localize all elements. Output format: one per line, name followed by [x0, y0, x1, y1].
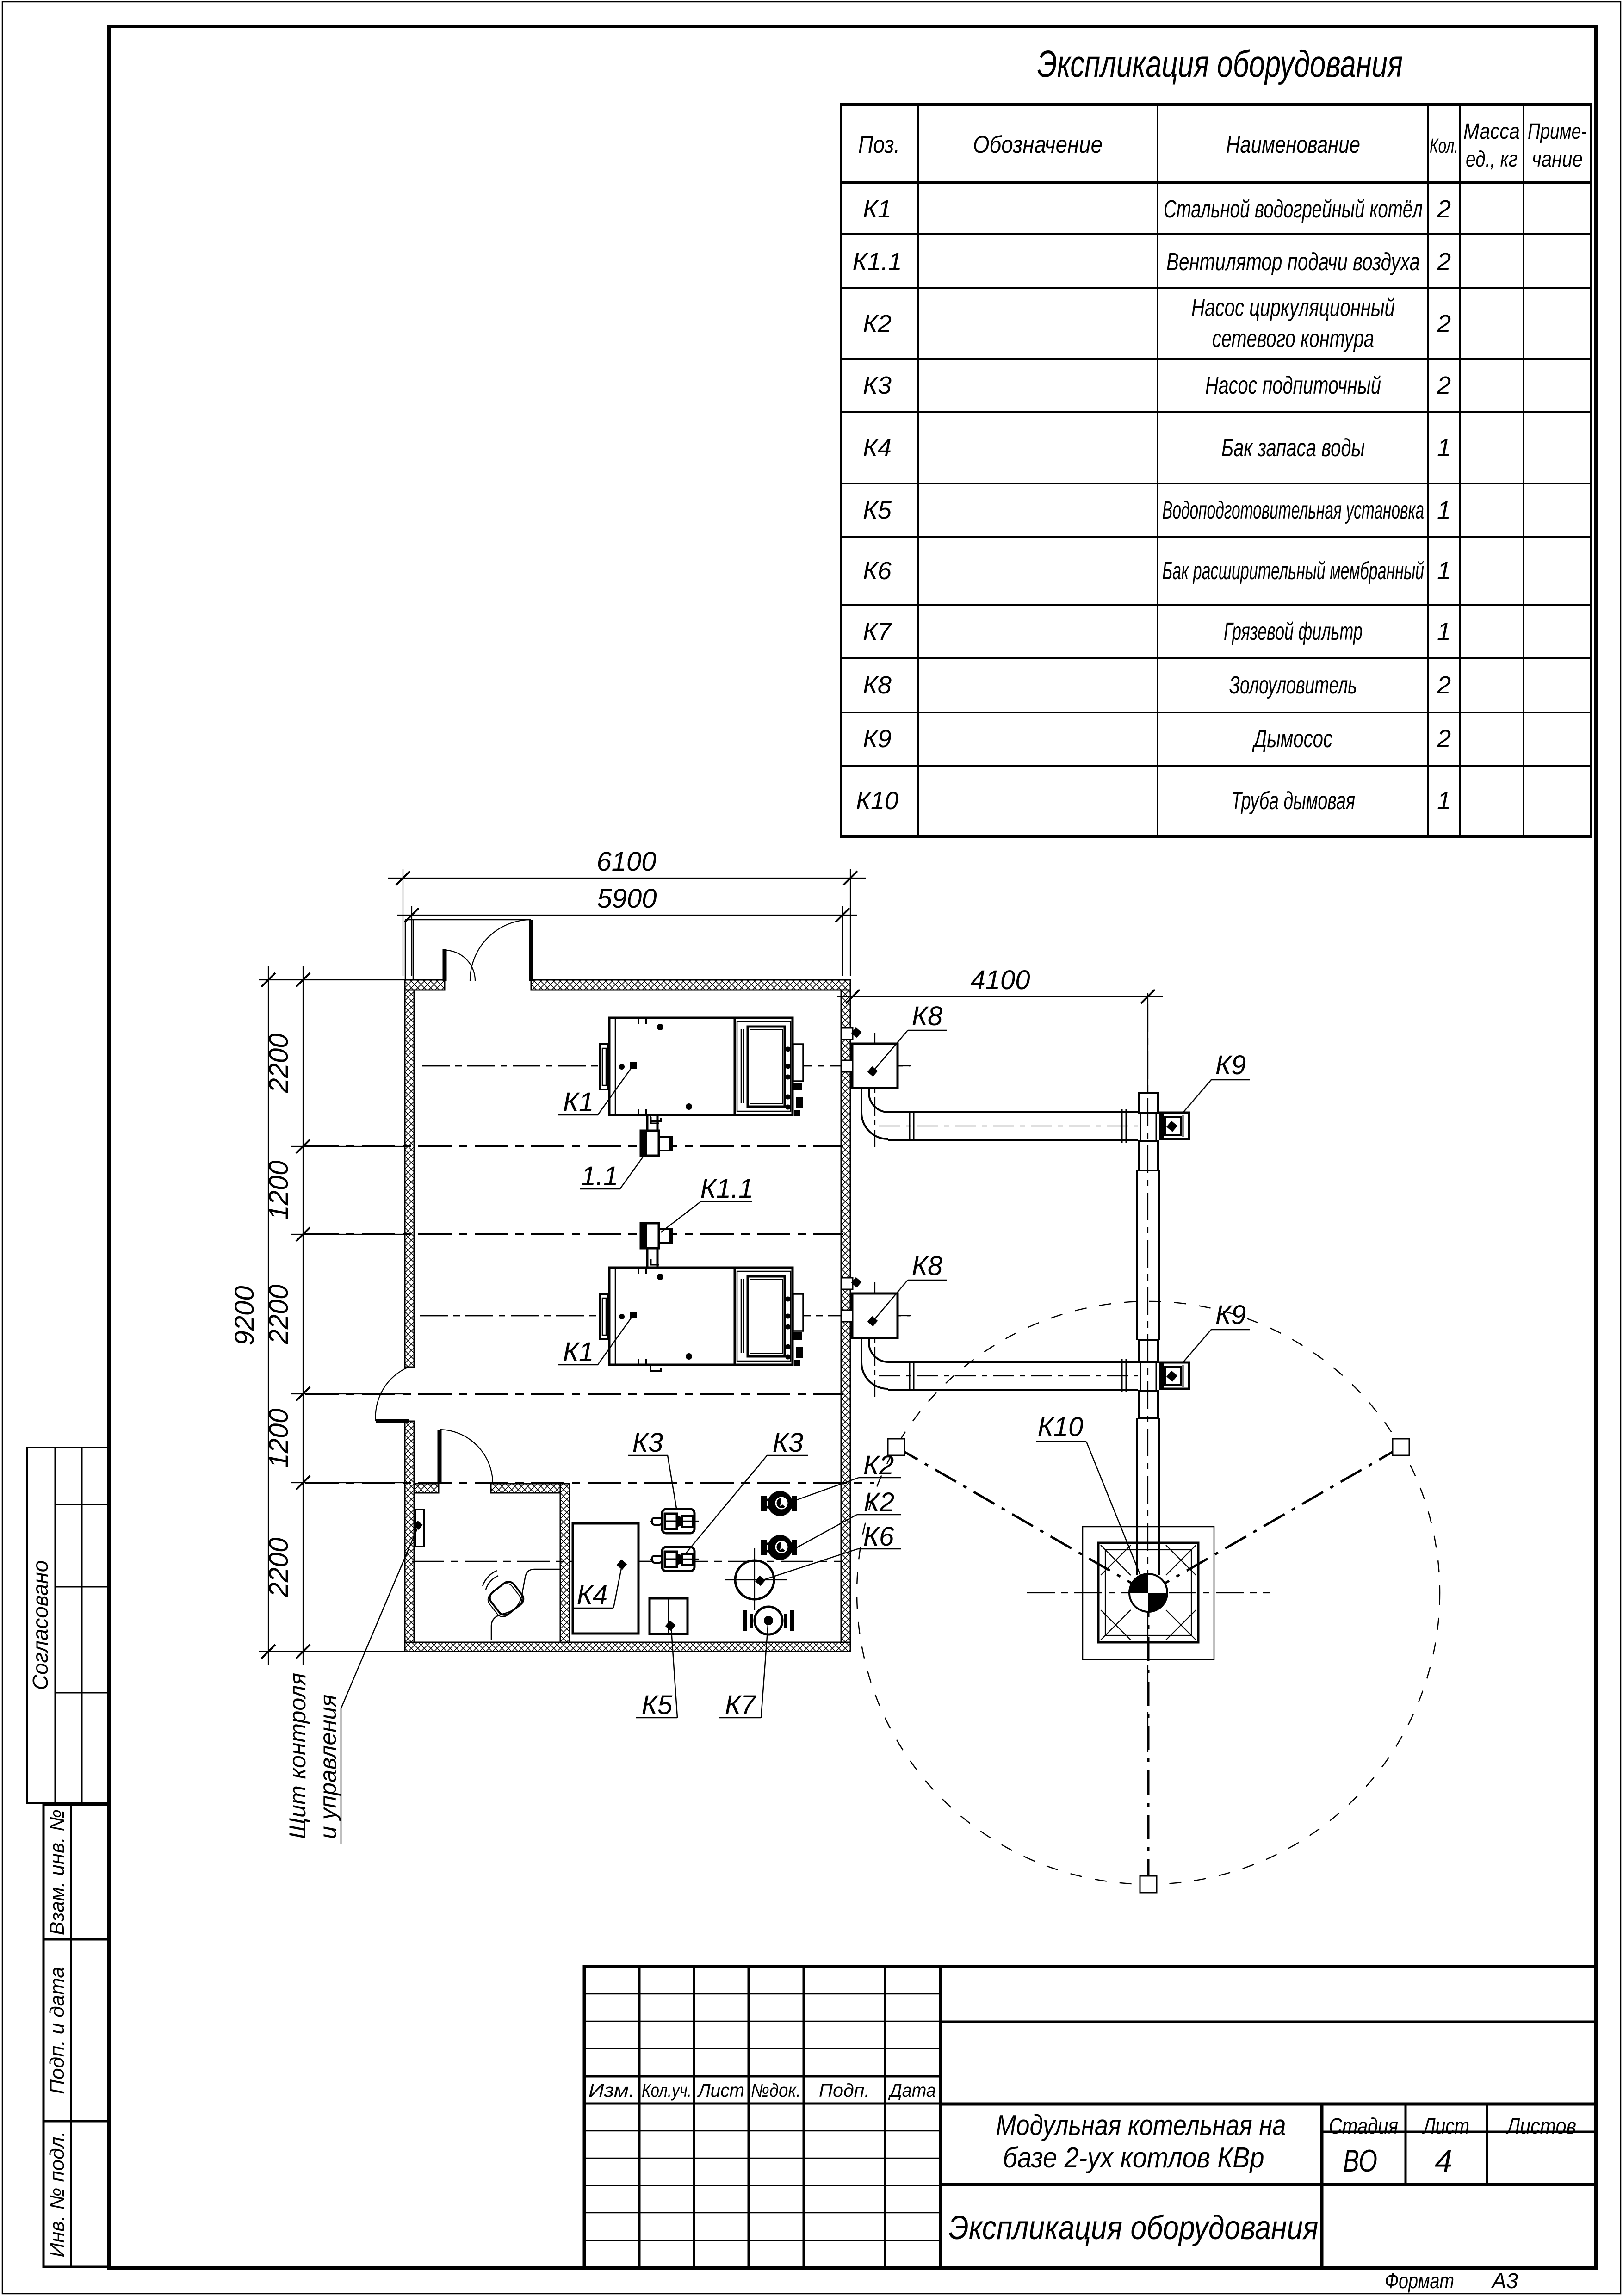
svg-text:4: 4 [1435, 2143, 1452, 2178]
svg-text:Лист: Лист [697, 2080, 744, 2101]
svg-text:К1.1: К1.1 [700, 1174, 754, 1204]
svg-text:Золоуловитель: Золоуловитель [1229, 671, 1357, 699]
svg-text:К1.1: К1.1 [853, 248, 902, 276]
svg-text:Масса: Масса [1463, 119, 1520, 144]
svg-text:К9: К9 [863, 725, 892, 753]
svg-text:Дымосос: Дымосос [1252, 725, 1332, 753]
svg-text:чание: чание [1532, 147, 1583, 172]
svg-text:Листов: Листов [1505, 2114, 1576, 2139]
svg-text:Кол.уч.: Кол.уч. [642, 2080, 692, 2101]
svg-text:1200: 1200 [264, 1408, 294, 1468]
svg-text:Наименование: Наименование [1226, 131, 1360, 158]
svg-text:Модульная котельная на: Модульная котельная на [996, 2110, 1286, 2141]
svg-text:Стальной водогрейный котёл: Стальной водогрейный котёл [1164, 195, 1423, 223]
svg-text:К4: К4 [577, 1580, 607, 1610]
svg-text:К3: К3 [863, 371, 892, 399]
svg-text:Бак расширительный мембранный: Бак расширительный мембранный [1162, 557, 1424, 585]
svg-text:К9: К9 [1215, 1050, 1246, 1080]
svg-text:Дата: Дата [888, 2080, 936, 2101]
svg-text:Грязевой фильтр: Грязевой фильтр [1224, 618, 1363, 645]
svg-text:Лист: Лист [1422, 2114, 1469, 2139]
svg-text:2: 2 [1437, 371, 1451, 399]
svg-text:2200: 2200 [264, 1537, 294, 1597]
svg-text:Поз.: Поз. [858, 131, 900, 158]
svg-text:ВО: ВО [1343, 2143, 1377, 2178]
svg-text:Экспликация оборудования: Экспликация оборудования [1037, 43, 1403, 85]
svg-text:А3: А3 [1491, 2269, 1518, 2293]
svg-text:Изм.: Изм. [588, 2080, 635, 2101]
svg-text:К2: К2 [864, 1487, 894, 1517]
svg-text:Согласовано: Согласовано [28, 1560, 52, 1690]
svg-text:базе 2-ух котлов КВр: базе 2-ух котлов КВр [1003, 2142, 1264, 2174]
svg-text:2: 2 [1437, 310, 1451, 338]
svg-text:2: 2 [1437, 671, 1451, 699]
svg-text:9200: 9200 [229, 1286, 260, 1345]
svg-text:К7: К7 [725, 1690, 757, 1720]
svg-text:Стадия: Стадия [1329, 2114, 1398, 2139]
svg-text:К10: К10 [856, 787, 898, 815]
svg-text:1.1: 1.1 [581, 1161, 619, 1191]
svg-text:Водоподготовительная установка: Водоподготовительная установка [1162, 496, 1424, 524]
svg-text:1: 1 [1437, 557, 1451, 585]
svg-text:Насос циркуляционный: Насос циркуляционный [1191, 294, 1395, 322]
svg-text:Экспликация оборудования: Экспликация оборудования [949, 2209, 1319, 2246]
svg-text:2200: 2200 [264, 1284, 294, 1344]
svg-text:1200: 1200 [264, 1160, 294, 1220]
svg-text:Приме-: Приме- [1528, 119, 1587, 144]
svg-text:Подп.: Подп. [819, 2080, 870, 2101]
svg-text:К3: К3 [773, 1428, 803, 1458]
svg-text:2: 2 [1437, 248, 1451, 276]
svg-text:К3: К3 [632, 1428, 663, 1458]
svg-text:6100: 6100 [596, 847, 656, 877]
svg-text:К5: К5 [642, 1690, 673, 1720]
svg-text:2: 2 [1437, 195, 1451, 223]
svg-text:К4: К4 [863, 434, 892, 462]
svg-text:Труба дымовая: Труба дымовая [1231, 787, 1355, 815]
svg-text:Кол.: Кол. [1430, 135, 1458, 157]
svg-text:Взам. инв. №: Взам. инв. № [46, 1809, 68, 1935]
svg-text:К6: К6 [863, 1522, 894, 1552]
svg-text:5900: 5900 [597, 884, 657, 914]
svg-text:4100: 4100 [970, 965, 1030, 995]
svg-text:2200: 2200 [264, 1033, 294, 1093]
svg-text:сетевого контура: сетевого контура [1212, 325, 1374, 353]
svg-text:К5: К5 [863, 496, 892, 524]
svg-text:Обозначение: Обозначение [973, 131, 1103, 158]
svg-text:Насос подпиточный: Насос подпиточный [1205, 371, 1381, 399]
svg-text:и управления: и управления [315, 1695, 341, 1839]
svg-text:К7: К7 [863, 618, 892, 645]
svg-text:Щит контроля: Щит контроля [285, 1673, 310, 1839]
svg-text:К2: К2 [863, 310, 892, 338]
svg-text:1: 1 [1437, 496, 1451, 524]
svg-text:К1: К1 [563, 1087, 594, 1117]
svg-text:Бак запаса воды: Бак запаса воды [1221, 434, 1365, 462]
svg-text:ед., кг: ед., кг [1466, 147, 1518, 172]
svg-text:2: 2 [1437, 725, 1451, 753]
svg-text:К10: К10 [1038, 1412, 1084, 1442]
svg-text:Инв. № подл.: Инв. № подл. [46, 2131, 68, 2257]
svg-text:1: 1 [1437, 434, 1451, 462]
svg-text:К8: К8 [912, 1001, 942, 1031]
svg-text:К1: К1 [563, 1337, 594, 1367]
svg-text:К8: К8 [863, 671, 892, 699]
svg-text:1: 1 [1437, 618, 1451, 645]
svg-text:К6: К6 [863, 557, 892, 585]
svg-text:Формат: Формат [1385, 2269, 1454, 2293]
svg-text:Вентилятор подачи воздуха: Вентилятор подачи воздуха [1166, 248, 1420, 276]
svg-text:К1: К1 [863, 195, 892, 223]
svg-text:№док.: №док. [751, 2080, 801, 2101]
svg-text:1: 1 [1437, 787, 1451, 815]
svg-text:Подп. и дата: Подп. и дата [46, 1967, 68, 2094]
